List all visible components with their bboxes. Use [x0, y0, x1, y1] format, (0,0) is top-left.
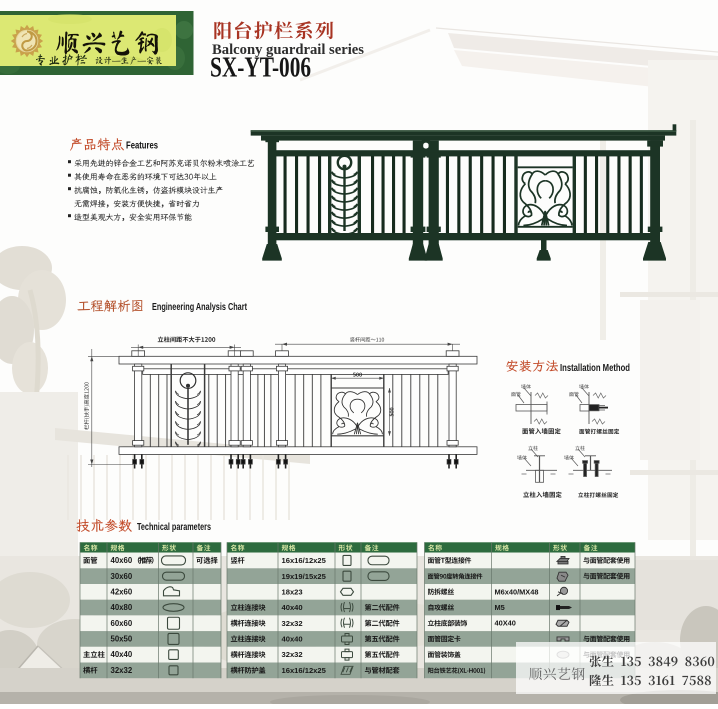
svg-text:32x32: 32x32 — [111, 666, 133, 675]
svg-text:16x16/12x25: 16x16/12x25 — [282, 556, 327, 565]
svg-text:40X40: 40X40 — [495, 619, 516, 628]
svg-text:Technical parameters: Technical parameters — [137, 522, 211, 533]
svg-text:Engineering Analysis Chart: Engineering Analysis Chart — [152, 302, 247, 313]
svg-text:60x60: 60x60 — [111, 619, 133, 628]
svg-text:40x80: 40x80 — [111, 603, 133, 612]
svg-text:18x23: 18x23 — [282, 587, 303, 596]
svg-text:M6x40/MX48: M6x40/MX48 — [495, 587, 539, 596]
svg-text:40x40: 40x40 — [282, 603, 303, 612]
svg-text:16x16/12x25: 16x16/12x25 — [282, 666, 327, 675]
svg-text:40x60: 40x60 — [111, 556, 133, 565]
svg-text:42x60: 42x60 — [111, 587, 133, 596]
svg-text:40x40: 40x40 — [282, 635, 303, 644]
svg-text:32x32: 32x32 — [282, 619, 303, 628]
svg-text:M5: M5 — [495, 603, 505, 612]
svg-text:40x40: 40x40 — [111, 650, 133, 659]
svg-text:SX-YT-006: SX-YT-006 — [210, 53, 311, 84]
svg-text:32x32: 32x32 — [282, 650, 303, 659]
svg-text:50x50: 50x50 — [111, 635, 133, 644]
svg-text:Installation Method: Installation Method — [560, 363, 630, 374]
svg-text:Features: Features — [126, 141, 158, 152]
svg-text:19x19/15x25: 19x19/15x25 — [282, 572, 327, 581]
svg-text:30x60: 30x60 — [111, 572, 133, 581]
